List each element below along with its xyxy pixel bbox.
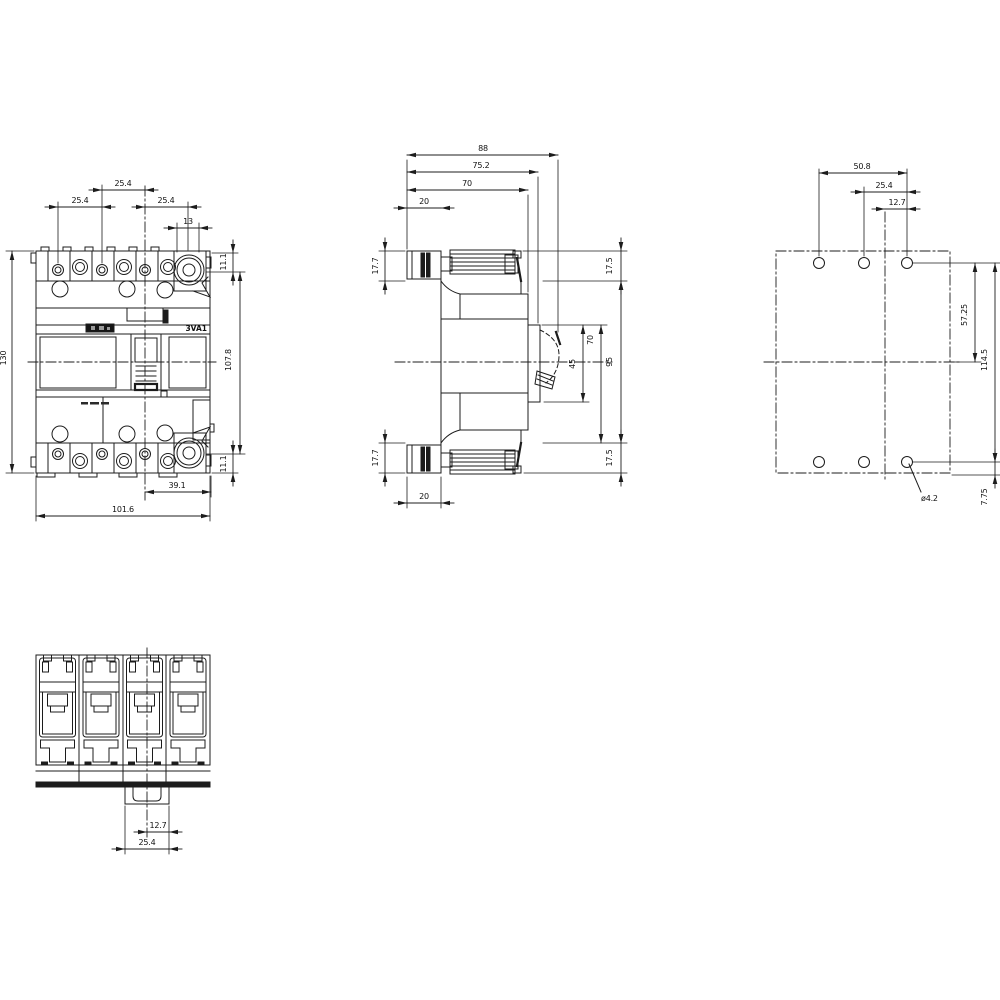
rear-mounting-holes (814, 258, 913, 468)
hole-diameter-label: ø4.2 (921, 494, 938, 503)
side-handle-escutcheon (528, 325, 560, 402)
front-top-ring-terminal (174, 251, 210, 297)
front-bottom-ring-terminal (174, 427, 210, 473)
dim-rear-hole-span-v-label: 114.5 (980, 349, 989, 371)
product-label: 3VA1 (185, 324, 207, 333)
dim-side-terminal-h-bottom: 17.7 (371, 430, 405, 486)
dim-rear-hole-half-label: 12.7 (888, 198, 905, 207)
dim-side-depth-label: 88 (478, 144, 488, 153)
dim-front-terminal-span: 107.8 (206, 272, 245, 454)
dim-front-terminal-span-label: 107.8 (224, 349, 233, 371)
side-view (395, 250, 612, 474)
front-small-print (81, 402, 109, 405)
dim-rear-hole-span-h-label: 50.8 (853, 162, 870, 171)
side-bottom-terminal (407, 445, 521, 474)
dim-front-offset-bottom: 11.1 (212, 441, 238, 486)
bottom-pole-2 (83, 655, 119, 765)
dim-side-handle-recess: 45 (544, 325, 589, 402)
dim-rear-hole-pitch-label: 25.4 (875, 181, 892, 190)
bottom-view (36, 648, 210, 837)
dim-bottom-clip-half-label: 12.7 (149, 821, 166, 830)
dim-front-offset-bottom-label: 11.1 (219, 455, 228, 472)
dim-side-depth-cover-label: 75.2 (472, 161, 489, 170)
front-top-terminal-strip (48, 251, 176, 281)
dim-front-height-label: 130 (0, 351, 8, 366)
dim-side-terminal-h-bottom-label: 17.7 (371, 449, 380, 466)
dim-side-cover-h: 70 (542, 325, 627, 443)
dim-rear-hole-edge-label: 7.75 (980, 488, 989, 505)
bottom-pole-4 (170, 655, 206, 765)
dim-front-width-label: 101.6 (112, 505, 134, 514)
dim-side-terminal-depth-top-label: 20 (419, 197, 429, 206)
dim-front-pitch-top-label: 25.4 (114, 179, 131, 188)
dim-rear-hole-half: 12.7 (872, 198, 920, 211)
dim-side-cover-h-label: 70 (586, 335, 595, 345)
dim-rear-hole-edge: 7.75 (952, 449, 1000, 506)
front-accessory-shadow (163, 310, 168, 323)
dim-front-pitch-left-label: 25.4 (71, 196, 88, 205)
dim-side-depth-cover: 75.2 (407, 161, 538, 323)
bottom-pole-3 (127, 655, 163, 765)
front-left-panel (40, 337, 116, 388)
dim-rear-hole-pitch: 25.4 (851, 181, 920, 256)
dim-rear-hole-to-center-label: 57.25 (960, 304, 969, 326)
dim-front-pitch-top: 25.4 (89, 179, 158, 192)
dim-side-depth-case: 70 (407, 179, 528, 292)
dim-side-terminal-depth-bottom-label: 20 (419, 492, 429, 501)
hole-diameter-callout: ø4.2 (909, 464, 938, 503)
dim-front-width-partial-label: 39.1 (168, 481, 185, 490)
rear-view: ø4.2 (764, 212, 960, 503)
dim-front-terminal-width-label: 13 (183, 217, 193, 226)
dim-side-front-h-top: 17.5 (523, 238, 627, 294)
dim-side-depth-case-label: 70 (462, 179, 472, 188)
dim-front-offset-top-label: 11.1 (219, 253, 228, 270)
bottom-rail-strip (36, 782, 210, 787)
dim-front-width-partial: 39.1 (145, 476, 211, 497)
dim-bottom-clip-width-label: 25.4 (138, 838, 155, 847)
front-top-tabs (31, 247, 211, 467)
dim-front-pitch-right-label: 25.4 (157, 196, 174, 205)
front-nameplate (86, 324, 114, 332)
front-right-compartment (193, 400, 210, 440)
dim-side-case-h-label: 95 (605, 357, 614, 367)
dim-side-terminal-h-top-label: 17.7 (371, 257, 380, 274)
dim-side-terminal-depth-top: 20 (394, 197, 454, 210)
dim-side-front-h-bottom: 17.5 (524, 430, 627, 486)
dim-side-terminal-h-top: 17.7 (371, 238, 405, 294)
side-top-terminal (407, 250, 521, 279)
dim-side-case-h: 95 (605, 281, 623, 443)
breaker-dimension-drawing: ø4.2 25.425.425.41311.1107.811.113039.11… (0, 0, 1000, 1000)
dim-side-handle-recess-label: 45 (568, 359, 577, 369)
dim-rear-hole-to-center: 57.25 (913, 263, 1000, 362)
bottom-pole-1 (40, 655, 76, 765)
front-right-panel (169, 337, 206, 388)
dim-rear-hole-span-v: 114.5 (913, 263, 1000, 462)
dim-side-terminal-depth-bottom: 20 (394, 477, 454, 508)
callout-leader-line (909, 464, 921, 492)
dim-side-front-h-bottom-label: 17.5 (605, 449, 614, 466)
front-bottom-terminal-strip (48, 443, 176, 473)
dim-side-front-h-top-label: 17.5 (605, 257, 614, 274)
bottom-base (36, 765, 210, 787)
side-toggle-handle (535, 371, 555, 389)
